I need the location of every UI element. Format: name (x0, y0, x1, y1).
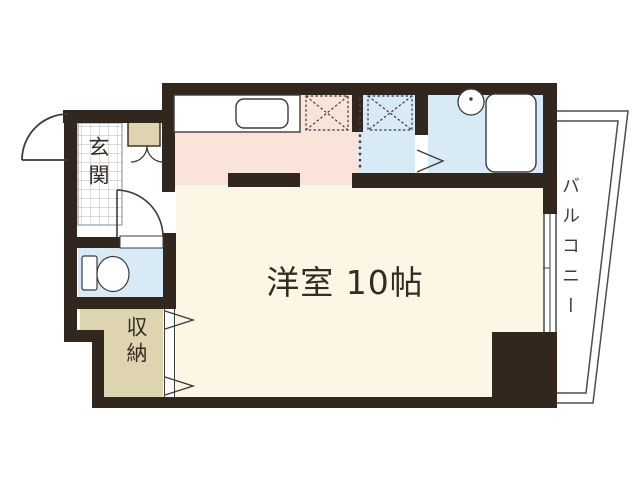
toilet-bowl-icon (97, 257, 129, 292)
wall-segment (64, 237, 120, 248)
wall-segment (63, 110, 168, 123)
wall-segment (64, 330, 104, 342)
floorplan: 洋室 10帖 玄関 収納 バルコニー (0, 0, 640, 480)
balcony-label: バルコニー (560, 176, 578, 326)
wall-segment (352, 83, 363, 132)
entrance-label: 玄関 (87, 136, 108, 192)
kitchen-sink-icon (236, 99, 288, 128)
wash-basin-faucet-icon (469, 97, 472, 100)
wall-segment (352, 173, 557, 188)
wall-segment (92, 397, 557, 408)
wall-segment (228, 173, 300, 187)
wall-segment (543, 83, 557, 214)
toilet-tank-icon (82, 256, 97, 290)
wash-basin-icon (458, 89, 484, 115)
wall-segment (162, 83, 175, 192)
washer-space-floor (358, 88, 418, 177)
wall-segment (492, 332, 557, 408)
toilet-doorway (120, 236, 163, 248)
wall-segment (415, 95, 428, 137)
wall-segment (64, 297, 176, 309)
storage-label: 収納 (125, 316, 146, 368)
floorplan-drawing (0, 0, 640, 480)
bathtub-icon (486, 94, 536, 172)
main-room-label: 洋室 10帖 (233, 266, 457, 299)
shoe-cabinet-doors-icon (131, 146, 163, 162)
wall-segment (92, 342, 104, 399)
interior-door-icon (117, 190, 163, 237)
entrance-door-icon (22, 114, 68, 160)
shoe-cabinet-icon (128, 122, 160, 146)
